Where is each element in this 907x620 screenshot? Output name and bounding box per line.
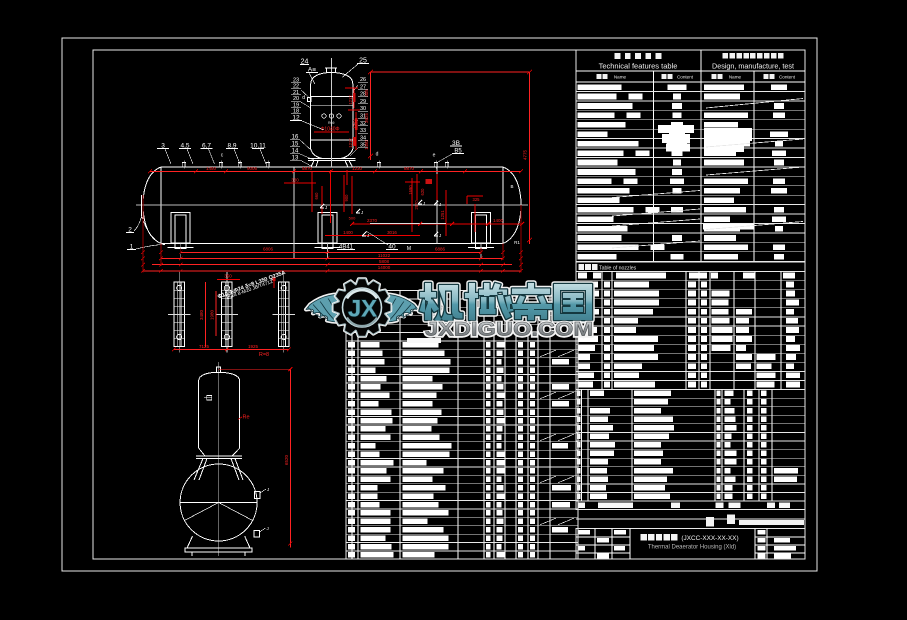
svg-text:Name: Name (614, 75, 627, 80)
svg-text:Table of nozzles: Table of nozzles (599, 265, 637, 271)
svg-text:R1: R1 (514, 240, 520, 245)
svg-text:Re: Re (242, 415, 249, 421)
svg-text:325: 325 (473, 197, 481, 202)
svg-text:Content: Content (779, 75, 796, 80)
svg-text:350: 350 (224, 274, 232, 279)
svg-text:J: J (439, 202, 441, 207)
svg-text:6806: 6806 (263, 247, 274, 252)
svg-text:1251: 1251 (440, 210, 445, 220)
svg-text:e: e (433, 153, 436, 159)
svg-text:1925: 1925 (248, 344, 259, 349)
svg-text:Name: Name (729, 75, 742, 80)
svg-text:1400: 1400 (493, 218, 504, 223)
svg-text:J: J (361, 210, 363, 215)
svg-text:JX: JX (348, 296, 377, 323)
svg-text:J: J (439, 233, 441, 238)
svg-text:330: 330 (291, 178, 299, 183)
svg-text:J: J (325, 205, 327, 210)
svg-text:J: J (367, 233, 369, 238)
svg-text:1212: 1212 (348, 138, 353, 148)
svg-text:1450: 1450 (364, 140, 369, 150)
svg-text:7125: 7125 (199, 344, 210, 349)
svg-text:J: J (267, 487, 269, 492)
svg-text:Content: Content (677, 75, 694, 80)
svg-text:1212: 1212 (348, 95, 353, 105)
svg-text:3016: 3016 (387, 230, 397, 235)
svg-text:1230: 1230 (352, 166, 363, 171)
svg-text:9006: 9006 (247, 166, 258, 171)
svg-text:6520: 6520 (284, 454, 289, 465)
svg-text:J: J (267, 526, 269, 531)
svg-text:5808: 5808 (379, 259, 390, 264)
svg-text:4775: 4775 (523, 149, 528, 160)
svg-text:1212: 1212 (352, 119, 357, 129)
svg-text:d: d (376, 152, 379, 158)
svg-text:M: M (407, 246, 411, 252)
svg-text:J: J (423, 201, 425, 206)
svg-text:Technical features table: Technical features table (599, 62, 678, 71)
svg-text:660: 660 (314, 192, 319, 200)
svg-text:R6θ: R6θ (328, 121, 334, 125)
svg-text:1690: 1690 (408, 185, 413, 195)
svg-text:3625: 3625 (364, 112, 369, 123)
svg-text:Design, manufacture, test: Design, manufacture, test (712, 62, 794, 71)
svg-text:620: 620 (420, 188, 425, 196)
svg-text:Thermal Deaerator Housing (Xld: Thermal Deaerator Housing (Xld) (648, 545, 736, 551)
svg-text:5870: 5870 (302, 166, 313, 171)
svg-text:(JXCC-XXX-XX-XX): (JXCC-XXX-XX-XX) (681, 535, 738, 542)
svg-text:900: 900 (344, 194, 349, 202)
svg-text:3480: 3480 (199, 309, 204, 320)
svg-text:500: 500 (349, 216, 356, 221)
svg-text:2970: 2970 (414, 200, 419, 210)
svg-text:8870: 8870 (404, 166, 415, 171)
svg-text:1400: 1400 (343, 230, 353, 235)
svg-text:14000: 14000 (378, 265, 391, 270)
svg-text:1980: 1980 (210, 309, 215, 320)
svg-text:d: d (302, 95, 305, 101)
svg-text:11022: 11022 (378, 253, 391, 258)
svg-text:JXDIGUO.COM: JXDIGUO.COM (425, 320, 593, 341)
svg-text:1450: 1450 (206, 166, 217, 171)
svg-text:305: 305 (364, 89, 369, 97)
svg-text:6886: 6886 (435, 247, 446, 252)
svg-text:B: B (510, 184, 513, 189)
svg-text:2370: 2370 (367, 218, 378, 223)
svg-text:R=8: R=8 (259, 352, 269, 358)
